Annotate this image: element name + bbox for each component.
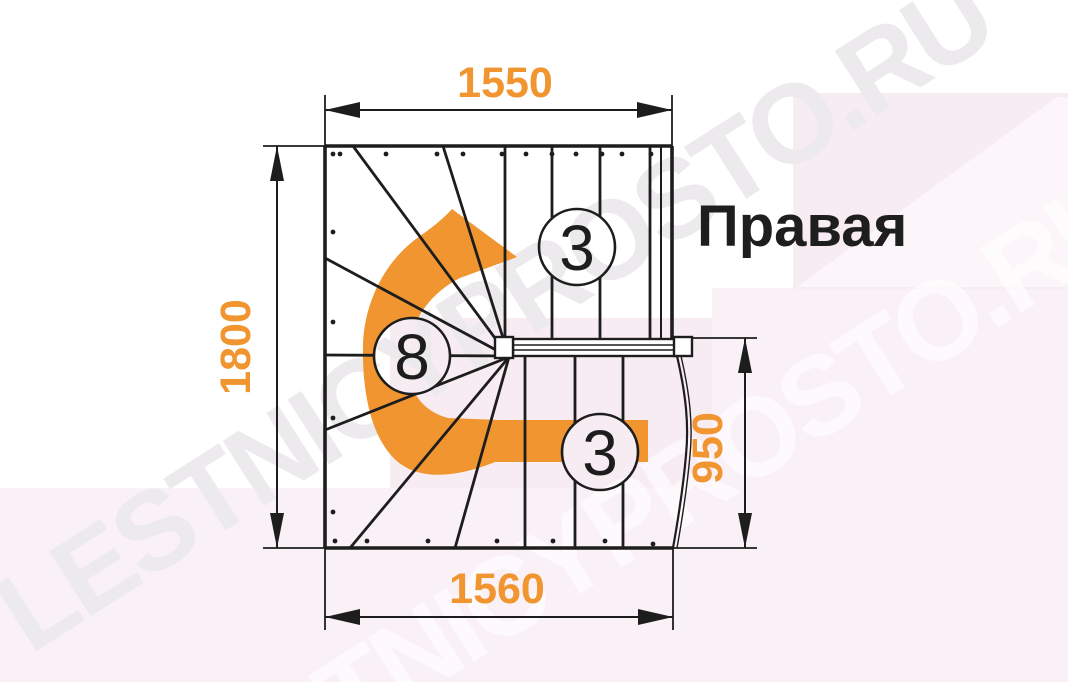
orientation-label: Правая	[697, 194, 907, 259]
landing-edge-band	[513, 339, 676, 356]
stair-plan-image: LESTNICYPROSTO.RU LESTNICYPROSTO.RU	[0, 0, 1068, 682]
center-newel-post	[495, 337, 513, 358]
landing-edge	[513, 339, 676, 356]
lower-flight-step-count: 3	[582, 417, 618, 489]
upper-flight-step-count: 3	[559, 212, 595, 284]
winder-step-count: 8	[394, 321, 430, 393]
dimension-label-left: 1800	[212, 299, 260, 395]
dimension-label-bottom: 1560	[449, 565, 545, 613]
dimension-label-right: 950	[684, 412, 732, 484]
stair-plan-svg: LESTNICYPROSTO.RU LESTNICYPROSTO.RU	[0, 0, 1068, 682]
dimension-label-top: 1550	[457, 59, 553, 107]
right-newel-post	[674, 337, 692, 356]
